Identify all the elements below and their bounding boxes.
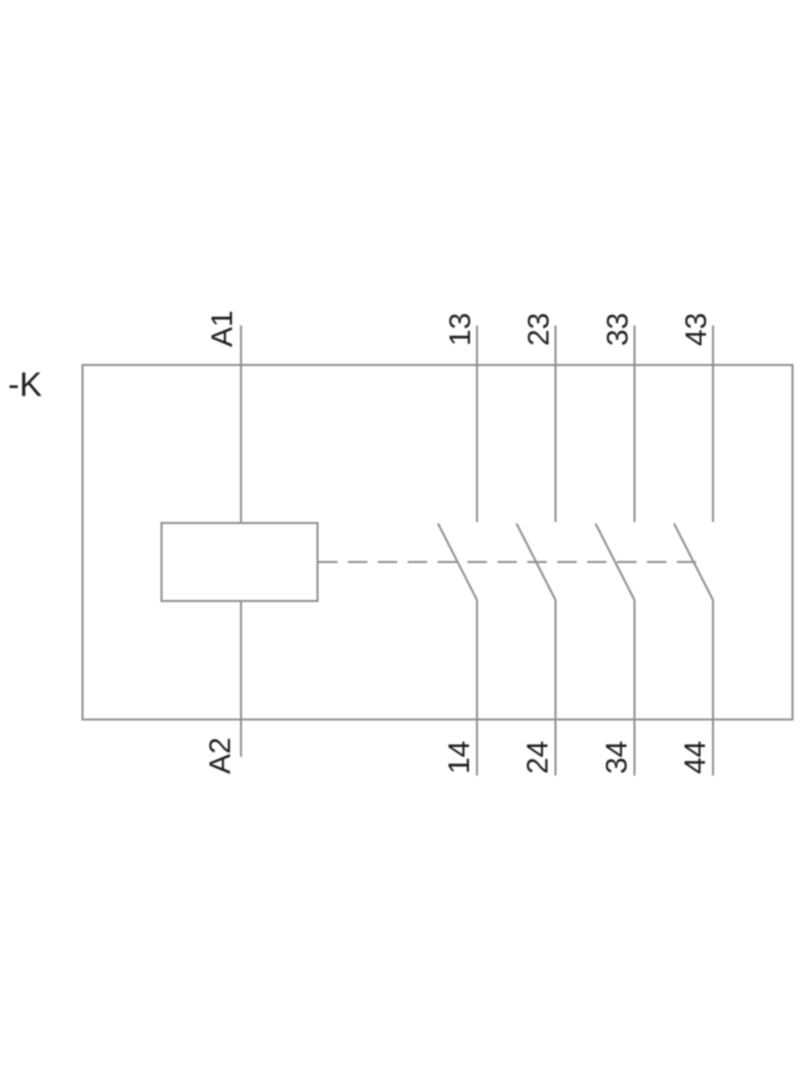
svg-text:13: 13 [444, 313, 477, 346]
svg-text:A2: A2 [204, 737, 237, 774]
svg-text:43: 43 [680, 313, 713, 346]
svg-text:34: 34 [601, 741, 634, 774]
svg-text:24: 24 [522, 741, 555, 774]
svg-text:44: 44 [679, 741, 712, 774]
svg-text:14: 14 [443, 741, 476, 774]
svg-text:23: 23 [523, 313, 556, 346]
svg-text:-K: -K [8, 366, 42, 404]
svg-text:A1: A1 [206, 310, 239, 347]
svg-text:33: 33 [602, 313, 635, 346]
